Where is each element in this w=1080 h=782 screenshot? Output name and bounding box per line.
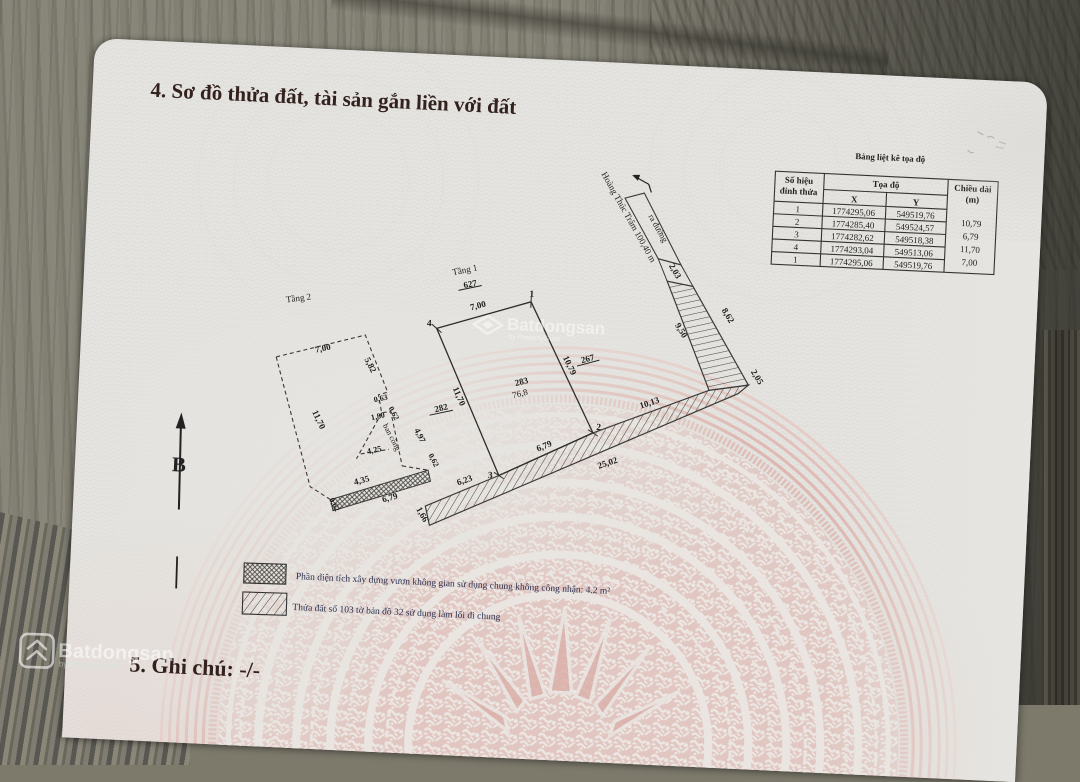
svg-text:B: B <box>171 452 186 477</box>
svg-text:X: X <box>851 194 858 204</box>
svg-text:Tọa độ: Tọa độ <box>872 179 900 190</box>
svg-text:Số hiệu: Số hiệu <box>785 175 814 186</box>
svg-text:đỉnh thửa: đỉnh thửa <box>780 185 819 197</box>
svg-text:549513,06: 549513,06 <box>894 247 933 259</box>
svg-text:549519,76: 549519,76 <box>896 209 935 221</box>
svg-text:2: 2 <box>795 217 800 227</box>
svg-text:1: 1 <box>795 204 800 214</box>
svg-text:1774295,06: 1774295,06 <box>832 206 876 218</box>
svg-text:6,79: 6,79 <box>963 231 980 242</box>
svg-text:1774295,06: 1774295,06 <box>830 256 874 268</box>
svg-text:11,70: 11,70 <box>960 244 981 255</box>
svg-text:549519,76: 549519,76 <box>894 259 933 271</box>
svg-text:4: 4 <box>427 319 432 329</box>
svg-text:by PropertyGuru: by PropertyGuru <box>59 660 118 671</box>
svg-text:1: 1 <box>529 290 534 300</box>
svg-text:10,79: 10,79 <box>961 218 982 229</box>
svg-text:Y: Y <box>913 197 920 207</box>
svg-text:2: 2 <box>596 423 601 433</box>
svg-text:1774285,40: 1774285,40 <box>831 219 875 231</box>
svg-text:1774293,04: 1774293,04 <box>830 244 874 256</box>
svg-text:549524,57: 549524,57 <box>896 222 935 234</box>
svg-text:3: 3 <box>488 471 493 481</box>
svg-text:1774282,62: 1774282,62 <box>831 231 874 243</box>
svg-text:7,00: 7,00 <box>961 257 978 268</box>
svg-text:1: 1 <box>793 255 798 265</box>
svg-text:549518,38: 549518,38 <box>895 234 934 246</box>
